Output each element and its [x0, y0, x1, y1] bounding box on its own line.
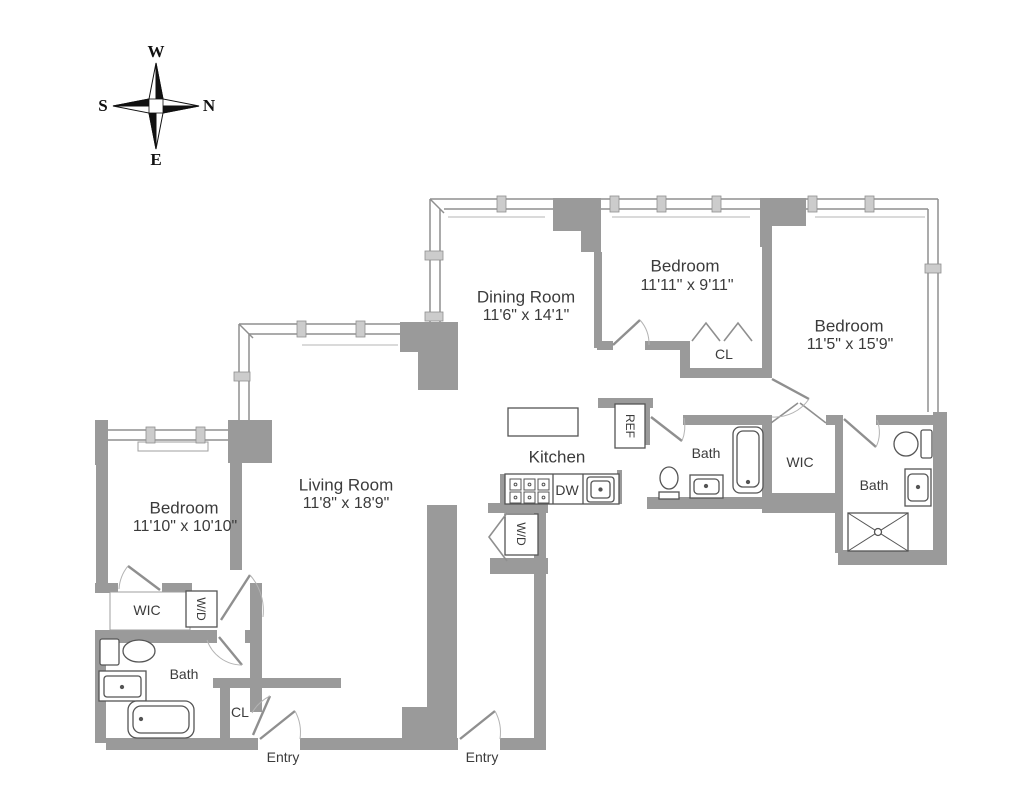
door-bath-right: [844, 419, 876, 447]
compass-south: S: [98, 96, 107, 116]
door-bedroom-top: [613, 320, 640, 345]
room-dims-living: 11'8" x 18'9": [303, 496, 390, 512]
toilet-tank-left: [100, 639, 119, 665]
label-bath-center: Bath: [692, 446, 721, 460]
toilet-center: [660, 467, 678, 489]
door-wic-right-2: [800, 403, 826, 423]
label-bath-right: Bath: [860, 478, 889, 492]
door-entry-left: [260, 711, 295, 739]
room-label-kitchen: Kitchen: [529, 449, 586, 466]
room-dims-dining: 11'6" x 14'1": [483, 308, 570, 324]
floor-plan-drawing: [0, 0, 1035, 800]
compass-west: W: [148, 42, 165, 62]
room-dims-bedroom-top: 11'11" x 9'11": [640, 278, 733, 294]
door-cl-top-bifold-2: [724, 323, 752, 341]
room-dims-bedroom-left: 11'10" x 10'10": [133, 519, 237, 535]
center-bath-fixtures: [659, 427, 763, 499]
label-wd-left: W/D: [195, 597, 207, 620]
door-bath-left: [219, 637, 242, 665]
door-wic-left: [128, 566, 160, 590]
compass-north: N: [203, 96, 215, 116]
door-entry-right: [460, 711, 495, 739]
label-wic-left: WIC: [133, 603, 160, 617]
label-cl-left: CL: [231, 705, 249, 719]
left-bath-fixtures: [99, 639, 194, 738]
room-label-dining: Dining Room: [477, 289, 575, 306]
toilet-left: [123, 640, 155, 662]
room-label-living: Living Room: [299, 477, 394, 494]
room-dims-bedroom-right: 11'5" x 15'9": [807, 337, 894, 353]
compass-east: E: [150, 150, 161, 170]
room-label-bedroom-right: Bedroom: [815, 318, 884, 335]
label-dw: DW: [555, 483, 578, 497]
floor-plan: W S N E Dining Room 11'6" x 14'1" Bedroo…: [0, 0, 1035, 800]
door-bath-center: [651, 417, 682, 441]
shower-right: [848, 513, 908, 551]
door-bedroom-left-living: [221, 575, 250, 620]
toilet-right: [894, 432, 918, 456]
label-ref: REF: [624, 414, 636, 438]
door-cl-top-bifold-1: [692, 323, 720, 341]
label-wic-right: WIC: [786, 455, 813, 469]
label-cl-top: CL: [715, 347, 733, 361]
door-wd-kitchen-bifold: [489, 513, 507, 561]
compass-rose: [113, 63, 199, 149]
label-wd-kitchen: W/D: [515, 522, 527, 545]
label-bath-left: Bath: [170, 667, 199, 681]
door-wic-right-1: [771, 403, 798, 423]
room-label-bedroom-left: Bedroom: [150, 500, 219, 517]
room-label-bedroom-top: Bedroom: [651, 258, 720, 275]
label-entry-left: Entry: [267, 750, 300, 764]
label-entry-right: Entry: [466, 750, 499, 764]
kitchen-island: [508, 408, 578, 436]
door-bedroom-right: [772, 379, 809, 399]
